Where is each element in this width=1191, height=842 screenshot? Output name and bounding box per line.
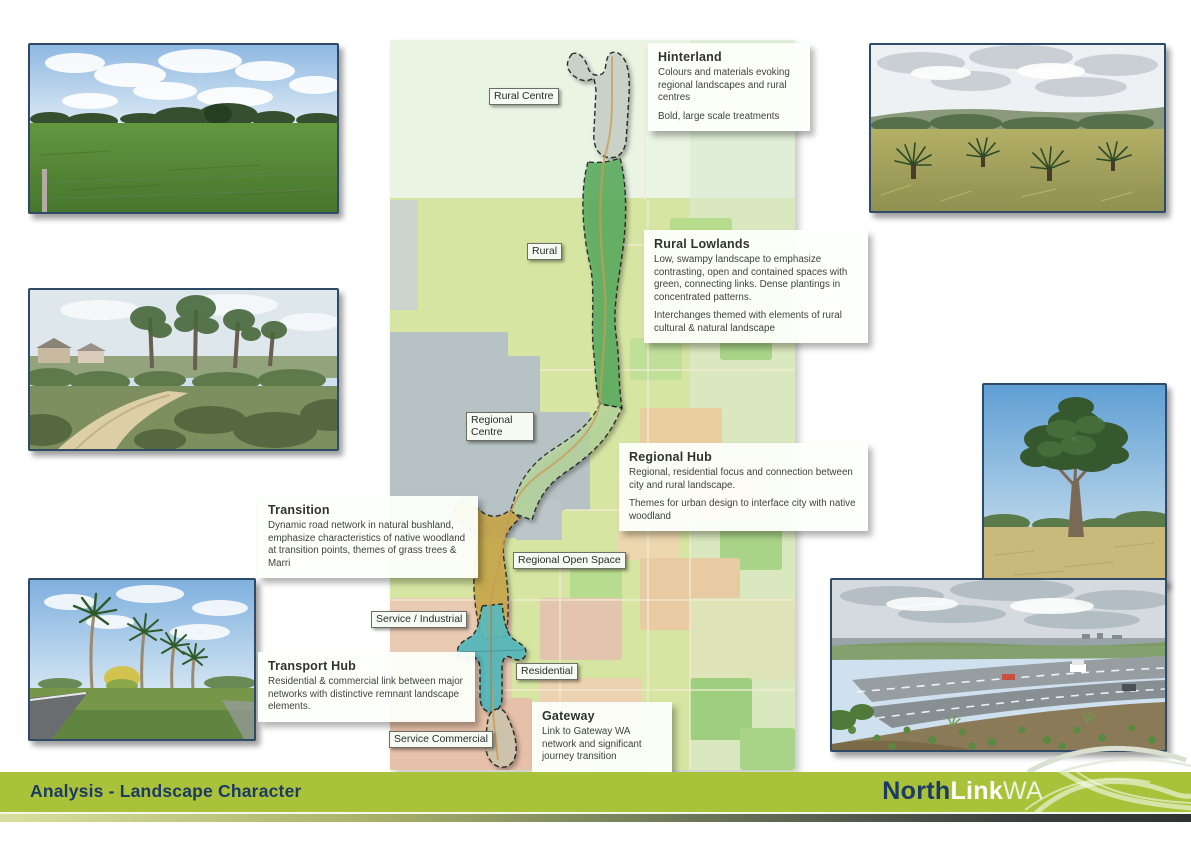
footer-gradient-strip — [0, 814, 1191, 822]
callout-rural-lowlands-body-1: Low, swampy landscape to emphasize contr… — [654, 254, 858, 304]
callout-transition: Transition Dynamic road network in natur… — [258, 496, 478, 578]
callout-regional-hub-title: Regional Hub — [629, 450, 858, 464]
map-label-rural-centre: Rural Centre — [489, 88, 559, 105]
highway-illustration — [832, 580, 1165, 750]
callout-hinterland-body-2: Bold, large scale treatments — [658, 111, 800, 124]
logo-part-link: Link — [950, 777, 1003, 805]
photo-palm-lined-road — [28, 578, 256, 741]
road-swoosh-graphic-upper — [1020, 742, 1191, 772]
callout-rural-lowlands-body-2: Interchanges themed with elements of rur… — [654, 310, 858, 335]
report-page: Rural Centre Rural Regional Centre Regio… — [0, 0, 1191, 842]
callout-regional-hub: Regional Hub Regional, residential focus… — [619, 443, 868, 531]
callout-transition-title: Transition — [268, 503, 468, 517]
northlink-wa-logo: NorthLinkWA — [882, 777, 1043, 806]
callout-gateway-title: Gateway — [542, 709, 662, 723]
logo-part-wa: WA — [1003, 777, 1043, 805]
map-label-rural: Rural — [527, 243, 562, 260]
callout-hinterland: Hinterland Colours and materials evoking… — [648, 43, 810, 131]
rural-pasture-illustration — [30, 45, 337, 212]
grass-trees-illustration — [871, 45, 1164, 211]
callout-rural-lowlands: Rural Lowlands Low, swampy landscape to … — [644, 230, 868, 343]
callout-transport-hub-body-1: Residential & commercial link between ma… — [268, 676, 465, 714]
map-label-regional-open-space: Regional Open Space — [513, 552, 626, 569]
photo-large-marri-tree — [982, 383, 1167, 585]
callout-transport-hub-title: Transport Hub — [268, 659, 465, 673]
footer-title-bar: Analysis - Landscape Character NorthLink… — [0, 772, 1191, 812]
page-title: Analysis - Landscape Character — [30, 781, 302, 802]
callout-gateway-body-1: Link to Gateway WA network and significa… — [542, 726, 662, 764]
callout-hinterland-body-1: Colours and materials evoking regional l… — [658, 67, 800, 105]
photo-highway-revegetation — [830, 578, 1167, 752]
map-label-residential: Residential — [516, 663, 578, 680]
photo-bushland-track — [28, 288, 339, 451]
palm-road-illustration — [30, 580, 254, 739]
callout-regional-hub-body-2: Themes for urban design to interface cit… — [629, 498, 858, 523]
callout-regional-hub-body-1: Regional, residential focus and connecti… — [629, 467, 858, 492]
callout-gateway: Gateway Link to Gateway WA network and s… — [532, 702, 672, 772]
callout-hinterland-title: Hinterland — [658, 50, 800, 64]
map-label-service-industrial: Service / Industrial — [371, 611, 467, 628]
bushland-track-illustration — [30, 290, 337, 449]
large-tree-illustration — [984, 385, 1165, 583]
photo-rural-pasture — [28, 43, 339, 214]
map-label-regional-centre: Regional Centre — [466, 412, 534, 441]
callout-transport-hub: Transport Hub Residential & commercial l… — [258, 652, 475, 722]
callout-transition-body-1: Dynamic road network in natural bushland… — [268, 520, 468, 570]
map-label-service-commercial: Service Commercial — [389, 731, 493, 748]
callout-rural-lowlands-title: Rural Lowlands — [654, 237, 858, 251]
photo-grass-trees-paddock — [869, 43, 1166, 213]
logo-part-north: North — [882, 777, 950, 805]
